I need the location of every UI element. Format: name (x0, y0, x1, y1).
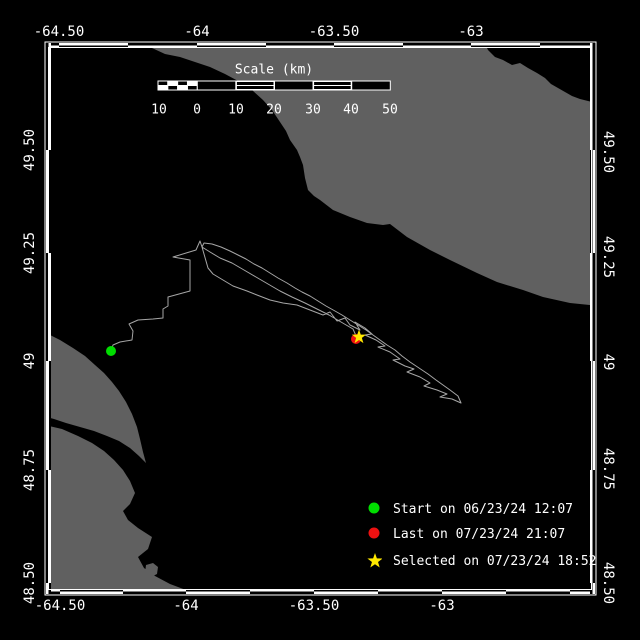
axis-label: -63 (429, 599, 454, 613)
legend-label-start: Start on 06/23/24 12:07 (393, 502, 573, 517)
legend-label-selected: Selected on 07/23/24 18:52 (393, 554, 597, 569)
axis-label: 48.50 (601, 562, 615, 604)
scale-bar-number: 0 (193, 103, 201, 118)
scale-bar-number: 50 (382, 103, 398, 118)
scale-bar-number: 40 (343, 103, 359, 118)
last-marker-icon (366, 525, 382, 541)
selected-marker-icon (366, 552, 382, 568)
scale-bar-number: 10 (151, 103, 167, 118)
start-marker (106, 346, 116, 356)
axis-label: 48.75 (601, 448, 615, 490)
scale-bar-number: 20 (266, 103, 282, 118)
axis-label: 48.50 (23, 562, 37, 604)
axis-label: 49 (601, 354, 615, 371)
map-plot[interactable] (0, 0, 640, 640)
axis-label: 49 (23, 353, 37, 370)
axis-label: 49.50 (23, 129, 37, 171)
axis-label: -63.50 (289, 599, 340, 613)
axis-label: -64.50 (34, 25, 85, 39)
axis-label: -64 (184, 25, 209, 39)
axis-label: 48.75 (23, 449, 37, 491)
scale-bar-title: Scale (km) (235, 63, 313, 78)
axis-label: 49.25 (23, 232, 37, 274)
axis-label: -63.50 (309, 25, 360, 39)
axis-label: -64 (173, 599, 198, 613)
axis-label: 49.50 (601, 131, 615, 173)
axis-label: 49.25 (601, 236, 615, 278)
scale-bar-number: 10 (228, 103, 244, 118)
axis-label: -64.50 (35, 599, 86, 613)
scale-bar-number: 30 (305, 103, 321, 118)
scale-bar (158, 81, 390, 90)
axis-label: -63 (458, 25, 483, 39)
map-window: -64.50-64-63.50-63 -64.50-64-63.50-63 49… (0, 0, 640, 640)
legend-label-last: Last on 07/23/24 21:07 (393, 527, 565, 542)
start-marker-icon (366, 500, 382, 516)
